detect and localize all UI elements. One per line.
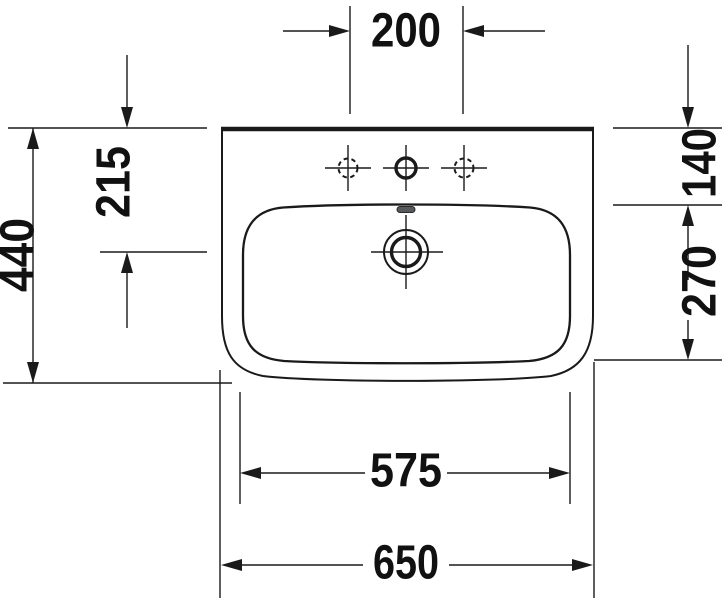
dim-rim-to-drain: 215 <box>88 55 208 328</box>
arrow-up-icon <box>121 252 133 273</box>
washbasin-outline <box>221 129 594 381</box>
dim-label-440: 440 <box>0 218 45 292</box>
dim-label-140: 140 <box>674 128 722 198</box>
arrow-right-icon <box>549 467 570 479</box>
dim-rim-to-basin: 140 <box>613 45 722 205</box>
arrow-up-icon <box>682 205 694 226</box>
dim-label-200: 200 <box>371 5 441 58</box>
dim-label-215: 215 <box>88 146 141 218</box>
dim-faucet-hole-spacing: 200 <box>283 5 545 115</box>
dim-basin-depth: 270 <box>594 205 722 360</box>
dim-label-270: 270 <box>674 245 722 317</box>
washbasin-dimension-drawing: 200 215 440 140 <box>0 0 722 600</box>
arrow-left-icon <box>463 25 484 37</box>
drain-icon <box>371 215 443 289</box>
arrow-up-icon <box>27 128 39 149</box>
arrow-left-icon <box>221 559 242 571</box>
arrow-down-icon <box>27 362 39 383</box>
faucet-hole-left-icon <box>325 145 371 191</box>
faucet-hole-right-icon <box>441 145 487 191</box>
arrow-left-icon <box>240 467 261 479</box>
dim-label-650: 650 <box>373 537 439 590</box>
dim-label-575: 575 <box>370 445 442 498</box>
arrow-right-icon <box>329 25 350 37</box>
overflow-slot-icon <box>397 207 415 213</box>
arrow-down-icon <box>682 339 694 360</box>
arrow-down-icon <box>121 107 133 128</box>
dim-basin-inner-width: 575 <box>240 392 570 504</box>
technical-drawing-canvas: 200 215 440 140 <box>0 0 722 600</box>
arrow-down-icon <box>682 107 694 128</box>
arrow-right-icon <box>572 559 593 571</box>
faucet-hole-center-icon <box>383 145 429 191</box>
